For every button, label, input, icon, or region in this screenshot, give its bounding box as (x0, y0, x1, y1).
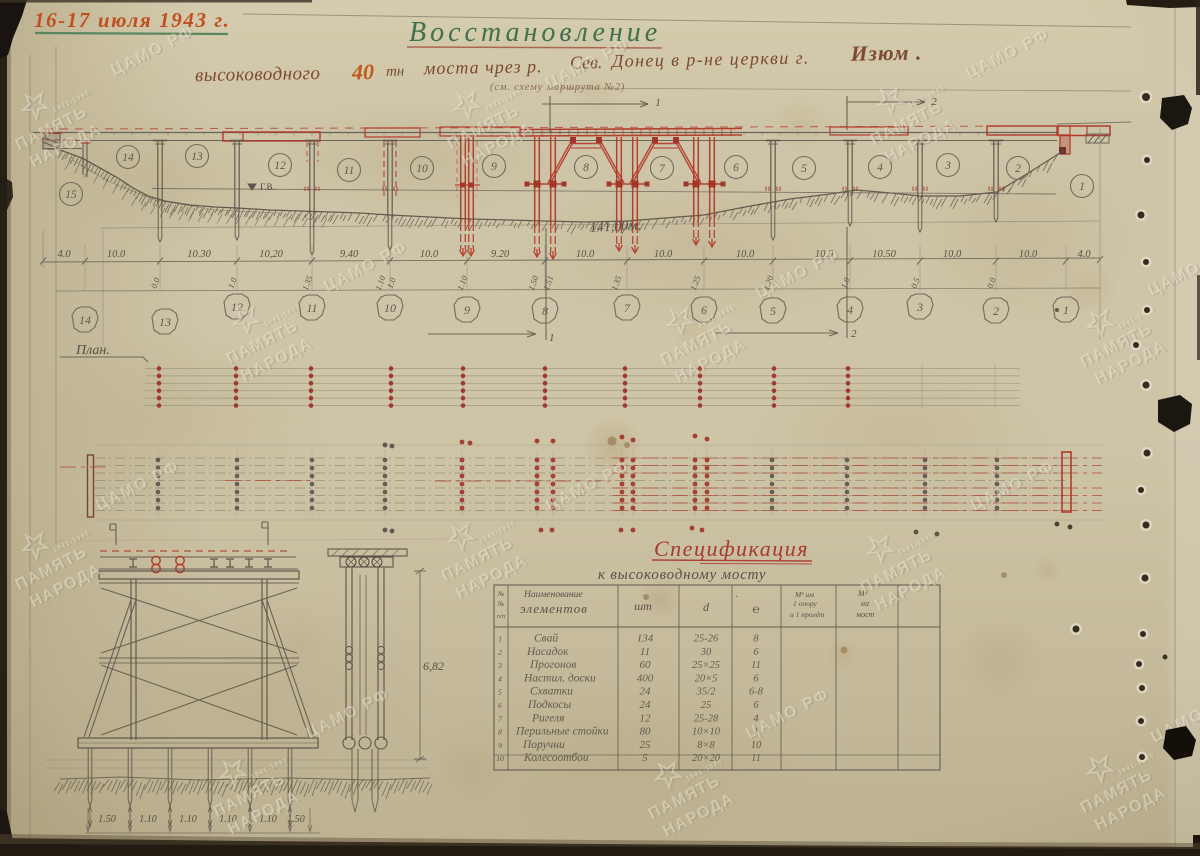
svg-text:11: 11 (751, 753, 761, 764)
svg-text:25: 25 (640, 739, 652, 751)
svg-text:15: 15 (65, 189, 77, 201)
svg-text:7: 7 (624, 301, 631, 315)
svg-text:10: 10 (384, 301, 396, 315)
svg-text:Прогонов: Прогонов (529, 659, 577, 671)
svg-text:35/2: 35/2 (696, 687, 716, 698)
svg-text:20×5: 20×5 (695, 673, 718, 684)
svg-text:10.0: 10.0 (943, 249, 962, 260)
svg-text:40: 40 (351, 59, 374, 84)
svg-text:Ригеля: Ригеля (531, 712, 564, 724)
svg-text:12: 12 (640, 712, 652, 724)
svg-text:℮: ℮ (752, 602, 759, 616)
svg-text:10,20: 10,20 (259, 249, 283, 260)
svg-text:6: 6 (733, 162, 739, 174)
svg-text:80: 80 (640, 726, 652, 738)
svg-text:8×8: 8×8 (697, 740, 715, 751)
svg-text:№: № (497, 590, 505, 598)
svg-text:11: 11 (344, 165, 355, 177)
svg-text:Г.В.: Г.В. (260, 182, 275, 192)
svg-text:Подкосы: Подкосы (527, 699, 572, 711)
svg-text:и 1 пролёт: и 1 пролёт (790, 610, 825, 619)
svg-text:8: 8 (542, 304, 548, 318)
svg-text:План.: План. (75, 343, 110, 358)
svg-text:134: 134 (637, 633, 654, 645)
svg-text:30: 30 (700, 647, 712, 658)
svg-text:Изюм .: Изюм . (850, 41, 923, 66)
svg-text:4: 4 (498, 674, 502, 683)
svg-text:Насадок: Насадок (526, 646, 569, 658)
svg-text:25-28: 25-28 (694, 713, 719, 724)
svg-text:25: 25 (701, 700, 712, 711)
svg-text:1.10: 1.10 (139, 814, 157, 825)
svg-text:Схватки: Схватки (530, 686, 573, 698)
svg-text:10.0: 10.0 (576, 249, 595, 260)
svg-text:8: 8 (583, 162, 589, 174)
svg-text:.: . (736, 589, 739, 600)
svg-text:10×10: 10×10 (692, 727, 721, 738)
svg-text:Свай: Свай (534, 632, 558, 645)
svg-text:высоководного: высоководного (195, 63, 321, 86)
svg-text:24: 24 (640, 686, 652, 698)
svg-text:2: 2 (498, 648, 502, 657)
svg-text:4: 4 (847, 303, 853, 317)
svg-text:8: 8 (753, 634, 759, 645)
svg-text:11: 11 (306, 301, 317, 315)
svg-text:13: 13 (159, 315, 171, 329)
svg-text:10.0: 10.0 (654, 249, 673, 260)
svg-text:4.0: 4.0 (1077, 249, 1091, 260)
svg-text:10.0: 10.0 (1019, 249, 1038, 260)
svg-text:Поручни: Поручни (522, 739, 565, 751)
svg-text:10.50: 10.50 (872, 249, 896, 260)
svg-text:3: 3 (916, 300, 923, 314)
svg-text:Перильные стойки: Перильные стойки (515, 725, 609, 738)
svg-text:6: 6 (753, 700, 759, 711)
svg-text:9: 9 (498, 741, 502, 750)
svg-text:2: 2 (993, 304, 999, 318)
svg-text:п/п: п/п (497, 613, 505, 620)
svg-text:400: 400 (637, 672, 654, 684)
svg-text:d: d (703, 600, 710, 614)
svg-text:1: 1 (655, 97, 661, 109)
svg-text:7: 7 (498, 714, 502, 723)
svg-text:6,82: 6,82 (423, 659, 444, 673)
svg-text:Донец в р-не церкви г.: Донец в р-не церкви г. (610, 47, 810, 70)
svg-text:4: 4 (877, 162, 883, 174)
svg-text:Наименование: Наименование (523, 590, 583, 600)
svg-text:на: на (861, 599, 869, 608)
svg-text:10.0: 10.0 (736, 249, 755, 260)
svg-text:мост: мост (855, 610, 875, 619)
svg-text:11: 11 (751, 660, 761, 671)
svg-text:9.40: 9.40 (340, 249, 359, 260)
svg-text:5: 5 (770, 304, 776, 318)
svg-text:5: 5 (642, 752, 648, 764)
svg-text:1: 1 (498, 635, 502, 644)
svg-text:10.0: 10.0 (107, 249, 126, 260)
svg-text:6: 6 (701, 303, 707, 317)
svg-text:141,00м.: 141,00м. (589, 218, 641, 236)
svg-text:тн: тн (386, 64, 405, 80)
svg-text:6: 6 (753, 673, 759, 684)
svg-text:14: 14 (79, 313, 91, 327)
svg-text:9: 9 (464, 303, 470, 317)
svg-text:5: 5 (801, 163, 807, 175)
svg-text:элементов: элементов (520, 601, 588, 616)
svg-text:1: 1 (1079, 181, 1085, 193)
svg-text:Настил. доски: Настил. доски (523, 672, 596, 684)
svg-text:Спецификация: Спецификация (654, 536, 809, 561)
svg-text:10.30: 10.30 (187, 249, 211, 260)
svg-text:5: 5 (498, 688, 502, 697)
svg-text:16-17 июля 1943 г.: 16-17 июля 1943 г. (34, 8, 230, 32)
svg-text:3: 3 (944, 160, 951, 172)
svg-text:3: 3 (497, 661, 502, 670)
svg-text:шт: шт (634, 599, 652, 613)
svg-text:1.10: 1.10 (179, 814, 197, 825)
svg-text:13: 13 (191, 151, 203, 163)
svg-text:10: 10 (496, 754, 504, 763)
svg-text:12: 12 (274, 160, 286, 172)
svg-text:2: 2 (851, 328, 857, 340)
svg-text:10.0: 10.0 (420, 249, 439, 260)
svg-text:4.0: 4.0 (57, 249, 71, 260)
svg-text:9: 9 (491, 161, 497, 173)
svg-text:1: 1 (549, 332, 555, 344)
svg-text:10: 10 (416, 163, 428, 175)
svg-text:6: 6 (498, 701, 502, 710)
svg-text:6: 6 (753, 647, 759, 658)
svg-text:6-8: 6-8 (749, 687, 764, 698)
svg-text:№: № (497, 600, 505, 608)
svg-text:1.50: 1.50 (98, 814, 116, 825)
svg-text:25×25: 25×25 (692, 660, 720, 671)
svg-text:11: 11 (640, 646, 650, 658)
svg-text:25-26: 25-26 (694, 634, 719, 645)
svg-text:24: 24 (640, 699, 652, 711)
svg-text:9.20: 9.20 (491, 249, 510, 260)
svg-text:2: 2 (1015, 163, 1021, 175)
svg-text:1 опору: 1 опору (793, 599, 818, 608)
svg-text:к высоководному мосту: к высоководному мосту (598, 567, 766, 583)
svg-text:14: 14 (122, 152, 134, 164)
svg-text:8: 8 (498, 728, 502, 737)
svg-text:1: 1 (1063, 303, 1069, 317)
svg-text:моста чрез р.: моста чрез р. (423, 56, 543, 78)
svg-text:60: 60 (640, 659, 652, 671)
svg-text:Колесоотбои: Колесоотбои (523, 752, 589, 764)
svg-text:М³ им: М³ им (794, 590, 814, 599)
